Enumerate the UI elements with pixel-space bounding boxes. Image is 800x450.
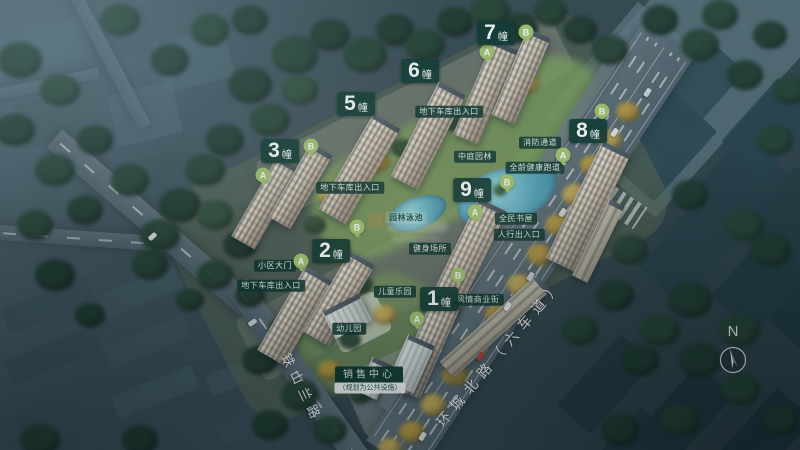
tree	[282, 75, 318, 105]
tree	[757, 125, 793, 155]
building-number: 1	[427, 288, 439, 309]
tree	[761, 404, 799, 435]
tree	[228, 67, 272, 103]
building-suffix: 幢	[333, 246, 343, 261]
building-label-5: 5 幢	[337, 92, 375, 116]
building-suffix: 幢	[422, 66, 432, 81]
label-garden-pool: 园林泳池	[385, 212, 427, 224]
tree	[197, 260, 233, 290]
tree	[727, 60, 763, 90]
watermark-logo	[368, 212, 383, 228]
tree	[77, 125, 113, 155]
label-sales-center: 销售中心	[335, 367, 403, 384]
tree	[616, 102, 640, 122]
building-suffix: 幢	[282, 146, 292, 161]
building-label-2: 2 幢	[312, 239, 350, 263]
label-garage-entrance-north: 地下车库出入口	[415, 106, 483, 118]
aerial-site-plan-rendering: 地下车库出入口 地下车库出入口 地下车库出入口 小区大门 中庭园林 消防通道 全…	[0, 0, 800, 450]
tree	[672, 180, 708, 210]
label-central-garden: 中庭园林	[454, 151, 496, 163]
tree	[0, 42, 42, 78]
unit-badge-2a: A	[294, 254, 309, 269]
tree	[437, 7, 473, 37]
tree	[197, 200, 233, 230]
tree	[405, 29, 445, 62]
label-fire-lane: 消防通道	[519, 137, 561, 149]
tree	[310, 19, 350, 52]
tree	[100, 4, 140, 37]
tree	[40, 74, 80, 107]
building-number: 8	[576, 120, 588, 141]
tree	[140, 219, 180, 252]
building-suffix: 幢	[590, 126, 600, 141]
label-kindergarten: 幼儿园	[332, 323, 366, 335]
tree	[753, 21, 787, 49]
tree	[343, 37, 387, 73]
tree	[562, 315, 598, 345]
tree	[681, 29, 719, 60]
unit-badge-9b: B	[500, 175, 515, 190]
watermark-text-blur	[392, 235, 440, 242]
unit-badge-7a: A	[480, 45, 495, 60]
building-number: 3	[268, 140, 280, 161]
tree	[660, 404, 700, 437]
building-suffix: 幢	[358, 99, 368, 114]
building-label-6: 6 幢	[401, 59, 439, 83]
tree	[592, 35, 628, 65]
unit-badge-8a: A	[556, 148, 571, 163]
tree	[75, 303, 105, 328]
label-community-gate: 小区大门	[254, 260, 296, 272]
label-fitness-area: 健身场所	[409, 243, 451, 255]
building-suffix: 幢	[441, 294, 451, 309]
tree	[563, 16, 597, 44]
tree	[373, 305, 397, 325]
label-sales-center-note: （规划为公共设施）	[335, 382, 406, 393]
label-public-library: 全民书屋	[495, 213, 537, 225]
tree	[702, 0, 738, 30]
tree	[378, 438, 402, 450]
compass: N	[710, 318, 756, 382]
tree	[111, 164, 149, 195]
tree	[206, 124, 244, 155]
tree	[67, 195, 103, 225]
building-suffix: 幢	[474, 185, 484, 200]
unit-badge-8b: B	[595, 104, 610, 119]
north-label: N	[728, 323, 739, 340]
building-number: 5	[344, 93, 356, 114]
tree	[122, 425, 158, 450]
tree	[17, 210, 53, 240]
tree	[252, 410, 288, 440]
tree	[304, 216, 326, 234]
unit-badge-3b: B	[304, 139, 319, 154]
building-number: 7	[484, 22, 496, 43]
unit-badge-2b: B	[350, 220, 365, 235]
label-garage-entrance-central: 地下车库出入口	[316, 182, 384, 194]
tree	[601, 414, 639, 445]
tree	[726, 209, 764, 240]
tree	[35, 259, 75, 292]
city-block	[103, 315, 192, 369]
label-children-playground: 儿童乐园	[374, 286, 416, 298]
building-label-7: 7 幢	[477, 21, 515, 45]
building-number: 9	[460, 179, 472, 200]
tree	[250, 104, 290, 137]
tree	[132, 250, 168, 280]
tree	[642, 5, 678, 35]
tree	[773, 76, 800, 104]
label-jogging-track: 全龄健康跑道	[506, 162, 565, 174]
unit-badge-7b: B	[519, 25, 534, 40]
tree	[35, 154, 75, 187]
city-block	[111, 365, 200, 419]
building-label-9: 9 幢	[453, 178, 491, 202]
building-label-3: 3 幢	[261, 139, 299, 163]
tree	[159, 188, 201, 222]
tree	[621, 344, 659, 375]
label-commercial-street: 风情商业街	[453, 294, 504, 306]
building-number: 2	[319, 240, 331, 261]
tree	[668, 282, 712, 318]
tree	[596, 279, 634, 310]
tree	[185, 154, 225, 187]
unit-badge-1a: A	[410, 312, 425, 327]
city-block	[4, 325, 103, 385]
tree	[232, 5, 268, 35]
label-garage-entrance-west: 地下车库出入口	[237, 280, 305, 292]
building-label-8: 8 幢	[569, 119, 607, 143]
unit-badge-1b: B	[451, 268, 466, 283]
building-suffix: 幢	[498, 28, 508, 43]
building-number: 6	[408, 60, 420, 81]
unit-badge-9a: A	[468, 205, 483, 220]
unit-badge-3a: A	[256, 168, 271, 183]
tree	[612, 235, 648, 265]
building-label-1: 1 幢	[420, 287, 458, 311]
tree	[20, 424, 60, 450]
tree	[640, 314, 680, 347]
tree	[191, 14, 229, 45]
label-pedestrian-entrance: 人行出入口	[494, 229, 545, 241]
tree	[151, 44, 189, 75]
